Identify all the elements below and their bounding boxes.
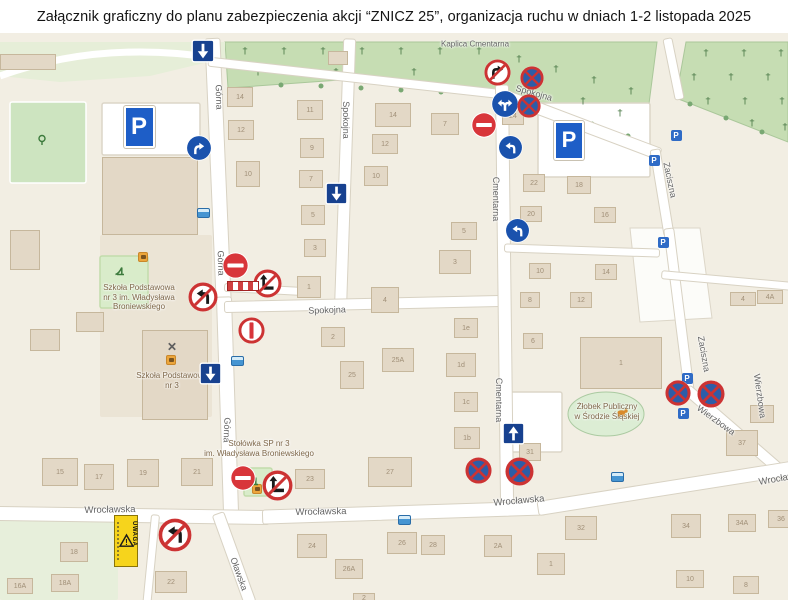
page-title: Załącznik graficzny do planu zabezpiecze… xyxy=(37,9,751,25)
building: 2 xyxy=(353,593,375,600)
building-number: 8 xyxy=(528,297,532,304)
building-number: 23 xyxy=(306,476,314,483)
oneway-down-sign xyxy=(325,182,348,205)
building-number: 7 xyxy=(309,176,313,183)
building-number: 27 xyxy=(386,469,394,476)
building: 14 xyxy=(227,87,253,107)
building: 22 xyxy=(155,571,187,593)
building-number: 4 xyxy=(741,296,745,303)
building-number: 8 xyxy=(744,582,748,589)
building-number: 14 xyxy=(602,269,610,276)
building: 4A xyxy=(757,290,783,304)
svg-text:†: † xyxy=(517,54,522,65)
parking-small-icon: P xyxy=(658,237,669,248)
building-number: 3 xyxy=(453,259,457,266)
poi-label: Żłobek Publicznyw Środzie Śląskiej xyxy=(575,402,640,421)
building-number: 14 xyxy=(389,112,397,119)
no-straight-turn-sign xyxy=(262,470,293,501)
road-barrier-sign xyxy=(227,281,259,291)
building: 8 xyxy=(520,292,540,308)
building xyxy=(76,312,104,332)
building: 4 xyxy=(371,287,399,313)
building: 4 xyxy=(730,292,756,306)
building: 27 xyxy=(368,457,412,487)
building: 1d xyxy=(446,353,476,377)
building: 34A xyxy=(728,514,756,532)
svg-text:†: † xyxy=(321,46,326,57)
street-label: Kaplica Cmentarna xyxy=(441,40,509,49)
mandatory-left-sign xyxy=(498,135,523,160)
building-number: 6 xyxy=(531,338,535,345)
svg-text:†: † xyxy=(750,118,755,129)
building: 1 xyxy=(537,553,565,575)
svg-text:†: † xyxy=(706,96,711,107)
mandatory-right-sign xyxy=(186,135,212,161)
building-number: 36 xyxy=(777,516,785,523)
building-number: 10 xyxy=(244,171,252,178)
building-number: 25 xyxy=(348,372,356,379)
no-right-turn-sign xyxy=(484,59,511,86)
street-label: Cmentarna xyxy=(494,378,504,423)
building: 15 xyxy=(42,458,78,486)
no-stopping-sign xyxy=(465,457,492,484)
building: 18 xyxy=(60,542,88,562)
svg-text:†: † xyxy=(704,48,709,59)
building: 16A xyxy=(7,578,33,594)
no-stopping-sign xyxy=(505,457,534,486)
shop-icon xyxy=(166,355,176,365)
building-number: 22 xyxy=(530,180,538,187)
svg-text:†: † xyxy=(779,48,784,59)
building: 18A xyxy=(51,574,79,592)
svg-text:†: † xyxy=(592,75,597,86)
building-number: 7 xyxy=(443,121,447,128)
building-number: 1 xyxy=(307,284,311,291)
svg-text:†: † xyxy=(766,72,771,83)
building-number: 9 xyxy=(310,145,314,152)
building-number: 5 xyxy=(462,228,466,235)
building: 25 xyxy=(340,361,364,389)
building-number: 21 xyxy=(193,469,201,476)
building-number: 1d xyxy=(457,362,465,369)
building: 9 xyxy=(300,138,324,158)
building: 1 xyxy=(297,276,321,298)
parking-small-icon: P xyxy=(678,408,689,419)
building: 8 xyxy=(733,576,759,594)
building: 26 xyxy=(387,532,417,554)
svg-text:†: † xyxy=(742,48,747,59)
no-entry-sign xyxy=(471,112,497,138)
building-number: 1 xyxy=(619,360,623,367)
svg-text:†: † xyxy=(360,46,365,57)
svg-text:†: † xyxy=(783,122,788,133)
oneway-down-sign xyxy=(199,362,222,385)
building-number: 28 xyxy=(429,542,437,549)
building-number: 34 xyxy=(682,523,690,530)
building: 1c xyxy=(454,392,478,412)
building: 17 xyxy=(84,464,114,490)
street-label: Górna xyxy=(214,84,225,109)
oneway-up-sign xyxy=(502,422,525,445)
building: 22 xyxy=(523,174,545,192)
building: 1b xyxy=(454,427,480,449)
svg-text:†: † xyxy=(554,64,559,75)
building: 2A xyxy=(484,535,512,557)
building-number: 31 xyxy=(526,449,534,456)
building-number: 12 xyxy=(381,141,389,148)
shop-icon xyxy=(138,252,148,262)
building-number: 26A xyxy=(343,566,355,573)
building-number: 16 xyxy=(601,212,609,219)
building-number: 2A xyxy=(494,543,503,550)
building: 3 xyxy=(304,239,326,257)
street-label: Spokojna xyxy=(308,304,346,315)
building: 10 xyxy=(236,161,260,187)
building: 6 xyxy=(523,333,543,349)
street-label: Wrocławska xyxy=(295,506,346,518)
building-number: 3 xyxy=(313,245,317,252)
svg-text:†: † xyxy=(243,46,248,57)
building-number: 1e xyxy=(462,325,470,332)
no-stopping-sign xyxy=(520,66,544,90)
svg-text:!: ! xyxy=(125,538,128,547)
svg-text:†: † xyxy=(618,108,623,119)
parking-large-sign: P xyxy=(554,123,584,158)
building: 23 xyxy=(295,469,325,489)
svg-text:†: † xyxy=(729,72,734,83)
building: 7 xyxy=(431,113,459,135)
building-number: 10 xyxy=(372,173,380,180)
mandatory-left-sign xyxy=(505,218,530,243)
no-stopping-sign xyxy=(517,94,541,118)
oneway-down-sign xyxy=(191,39,215,63)
bus-stop-icon xyxy=(231,356,244,366)
building-number: 32 xyxy=(577,525,585,532)
building-number: 12 xyxy=(577,297,585,304)
bus-stop-icon xyxy=(611,472,624,482)
building: 19 xyxy=(127,459,159,487)
building-number: 22 xyxy=(167,579,175,586)
building: 5 xyxy=(301,205,325,225)
building-number: 15 xyxy=(56,469,64,476)
building-number: 10 xyxy=(536,268,544,275)
building: 26A xyxy=(335,559,363,579)
building xyxy=(0,54,56,70)
building-number: 10 xyxy=(686,576,694,583)
building-number: 19 xyxy=(139,470,147,477)
building-number: 4 xyxy=(383,297,387,304)
building: 18 xyxy=(567,176,591,194)
svg-text:†: † xyxy=(412,67,417,78)
warning-board: ! UWAGA xyxy=(114,515,138,567)
no-left-turn-sign xyxy=(158,518,192,552)
building: 14 xyxy=(595,264,617,280)
poi-label: Szkoła Podstawowanr 3 im. WładysławaBron… xyxy=(103,283,175,312)
building: 7 xyxy=(299,170,323,188)
building: 2 xyxy=(321,327,345,347)
pet-icon xyxy=(616,408,628,417)
playground-icon xyxy=(113,264,126,277)
building-number: 12 xyxy=(237,127,245,134)
building: 16 xyxy=(594,207,616,223)
svg-text:†: † xyxy=(629,86,634,97)
map-attachment: Załącznik graficzny do planu zabezpiecze… xyxy=(0,0,788,600)
building-number: 37 xyxy=(738,440,746,447)
no-entry-sign xyxy=(230,465,256,491)
building-number: 24 xyxy=(308,543,316,550)
building-number: 5 xyxy=(311,212,315,219)
street-label: Cmentarna xyxy=(491,177,501,222)
building: 10 xyxy=(529,263,551,279)
no-entry-vertical-sign xyxy=(238,317,265,344)
svg-text:†: † xyxy=(692,72,697,83)
building-number: 17 xyxy=(95,474,103,481)
building-number: 2 xyxy=(331,334,335,341)
svg-text:†: † xyxy=(743,96,748,107)
parking-large-sign: P xyxy=(124,108,155,146)
building-number: 18 xyxy=(575,182,583,189)
building: 5 xyxy=(451,222,477,240)
building: 1e xyxy=(454,318,478,338)
building-number: 11 xyxy=(306,107,313,114)
building xyxy=(328,51,348,65)
svg-text:†: † xyxy=(581,96,586,107)
building: 12 xyxy=(570,292,592,308)
building: 12 xyxy=(228,120,254,140)
building-number: 25A xyxy=(392,357,404,364)
building: 3 xyxy=(439,250,471,274)
building-number: 20 xyxy=(527,211,535,218)
building: 24 xyxy=(297,534,327,558)
no-stopping-sign xyxy=(665,380,691,406)
building-number: 34A xyxy=(736,520,748,527)
no-left-turn-sign xyxy=(188,282,218,312)
building-number: 1c xyxy=(462,399,469,406)
building: 11 xyxy=(297,100,323,120)
building: 34 xyxy=(671,514,701,538)
street-label: Spokojna xyxy=(341,101,351,139)
building: 21 xyxy=(181,458,213,486)
building: 28 xyxy=(421,535,445,555)
svg-text:†: † xyxy=(399,46,404,57)
building-number: 14 xyxy=(236,94,244,101)
building-number: 18 xyxy=(70,549,78,556)
building-number: 4A xyxy=(766,294,775,301)
building: 32 xyxy=(565,516,597,540)
building xyxy=(30,329,60,351)
building: 14 xyxy=(375,103,411,127)
bus-stop-icon xyxy=(197,208,210,218)
building-number: 1 xyxy=(549,561,553,568)
title-bar: Załącznik graficzny do planu zabezpiecze… xyxy=(0,0,788,33)
building: 1 xyxy=(580,337,662,389)
poi-label: Szkoła Podstawowanr 3 xyxy=(136,371,208,390)
building: 36 xyxy=(768,510,788,528)
building: 25A xyxy=(382,348,414,372)
poi-label: Stołówka SP nr 3im. Władysława Broniewsk… xyxy=(204,439,314,458)
building-number: 18A xyxy=(59,580,71,587)
parking-small-icon: P xyxy=(649,155,660,166)
parking-small-icon: P xyxy=(671,130,682,141)
building-number: 26 xyxy=(398,540,406,547)
no-entry-sign xyxy=(222,252,249,279)
building-number: 2 xyxy=(362,595,366,600)
svg-text:†: † xyxy=(282,46,287,57)
building: 10 xyxy=(364,166,388,186)
no-stopping-sign xyxy=(697,380,725,408)
restaurant-icon xyxy=(166,340,178,352)
building xyxy=(10,230,40,270)
building-number: 16A xyxy=(14,583,26,590)
svg-text:†: † xyxy=(780,96,785,107)
building xyxy=(102,157,198,235)
sports-icon xyxy=(36,134,48,146)
building: 12 xyxy=(372,134,398,154)
building-number: 1b xyxy=(463,435,471,442)
building: 10 xyxy=(676,570,704,588)
bus-stop-icon xyxy=(398,515,411,525)
uwaga-board-sign: ! UWAGA xyxy=(114,515,138,567)
